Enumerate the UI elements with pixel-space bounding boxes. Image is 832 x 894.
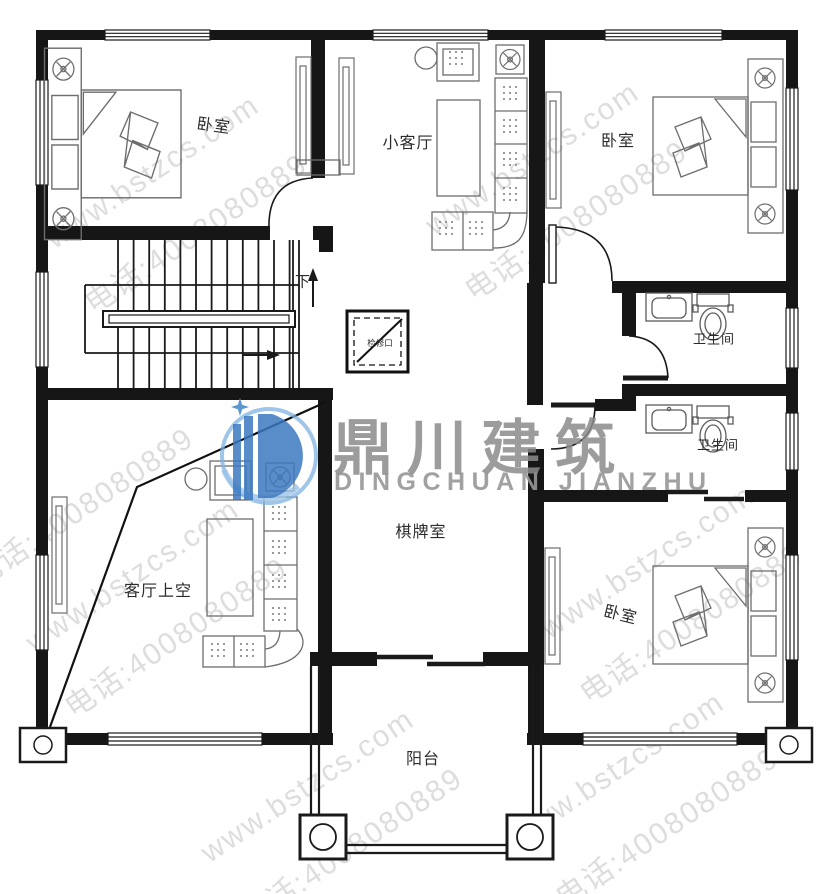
label-access-hatch: 检修口 — [367, 337, 393, 349]
sink-upper — [646, 293, 692, 321]
label-stairs-down: 下 — [295, 271, 311, 292]
round-table — [415, 47, 437, 69]
room-label-bathroom-lower: 卫生间 — [697, 435, 739, 454]
floor-plan-canvas: www.bstzcs.com 电话:4008080889 www.bstzcs.… — [0, 0, 832, 894]
room-label-bathroom-upper: 卫生间 — [693, 329, 735, 348]
room-label-bedroom-top-left: 卧室 — [195, 110, 232, 139]
room-label-balcony: 阳台 — [406, 745, 440, 769]
wardrobe — [339, 58, 354, 174]
bed-bottom-right — [653, 528, 783, 702]
bathroom-fixtures — [646, 293, 733, 452]
staircase — [85, 240, 318, 388]
tea-table — [437, 100, 480, 196]
sink-lower — [646, 405, 692, 433]
round-chair — [185, 468, 207, 490]
shelf — [52, 497, 67, 613]
bed-top-right — [653, 59, 783, 233]
coffee-table — [207, 519, 253, 616]
room-label-living-room-void: 客厅上空 — [124, 577, 192, 601]
room-label-bedroom-top-right: 卧室 — [601, 127, 635, 151]
wardrobe — [296, 57, 311, 173]
wardrobe — [545, 548, 560, 664]
wardrobe — [546, 92, 561, 208]
brand-name-en: DINGCHUAN JIANZHU — [334, 468, 713, 497]
room-label-small-living-room: 小客厅 — [382, 129, 433, 153]
bed-top-left — [45, 48, 182, 239]
room-label-game-room: 棋牌室 — [395, 518, 446, 542]
